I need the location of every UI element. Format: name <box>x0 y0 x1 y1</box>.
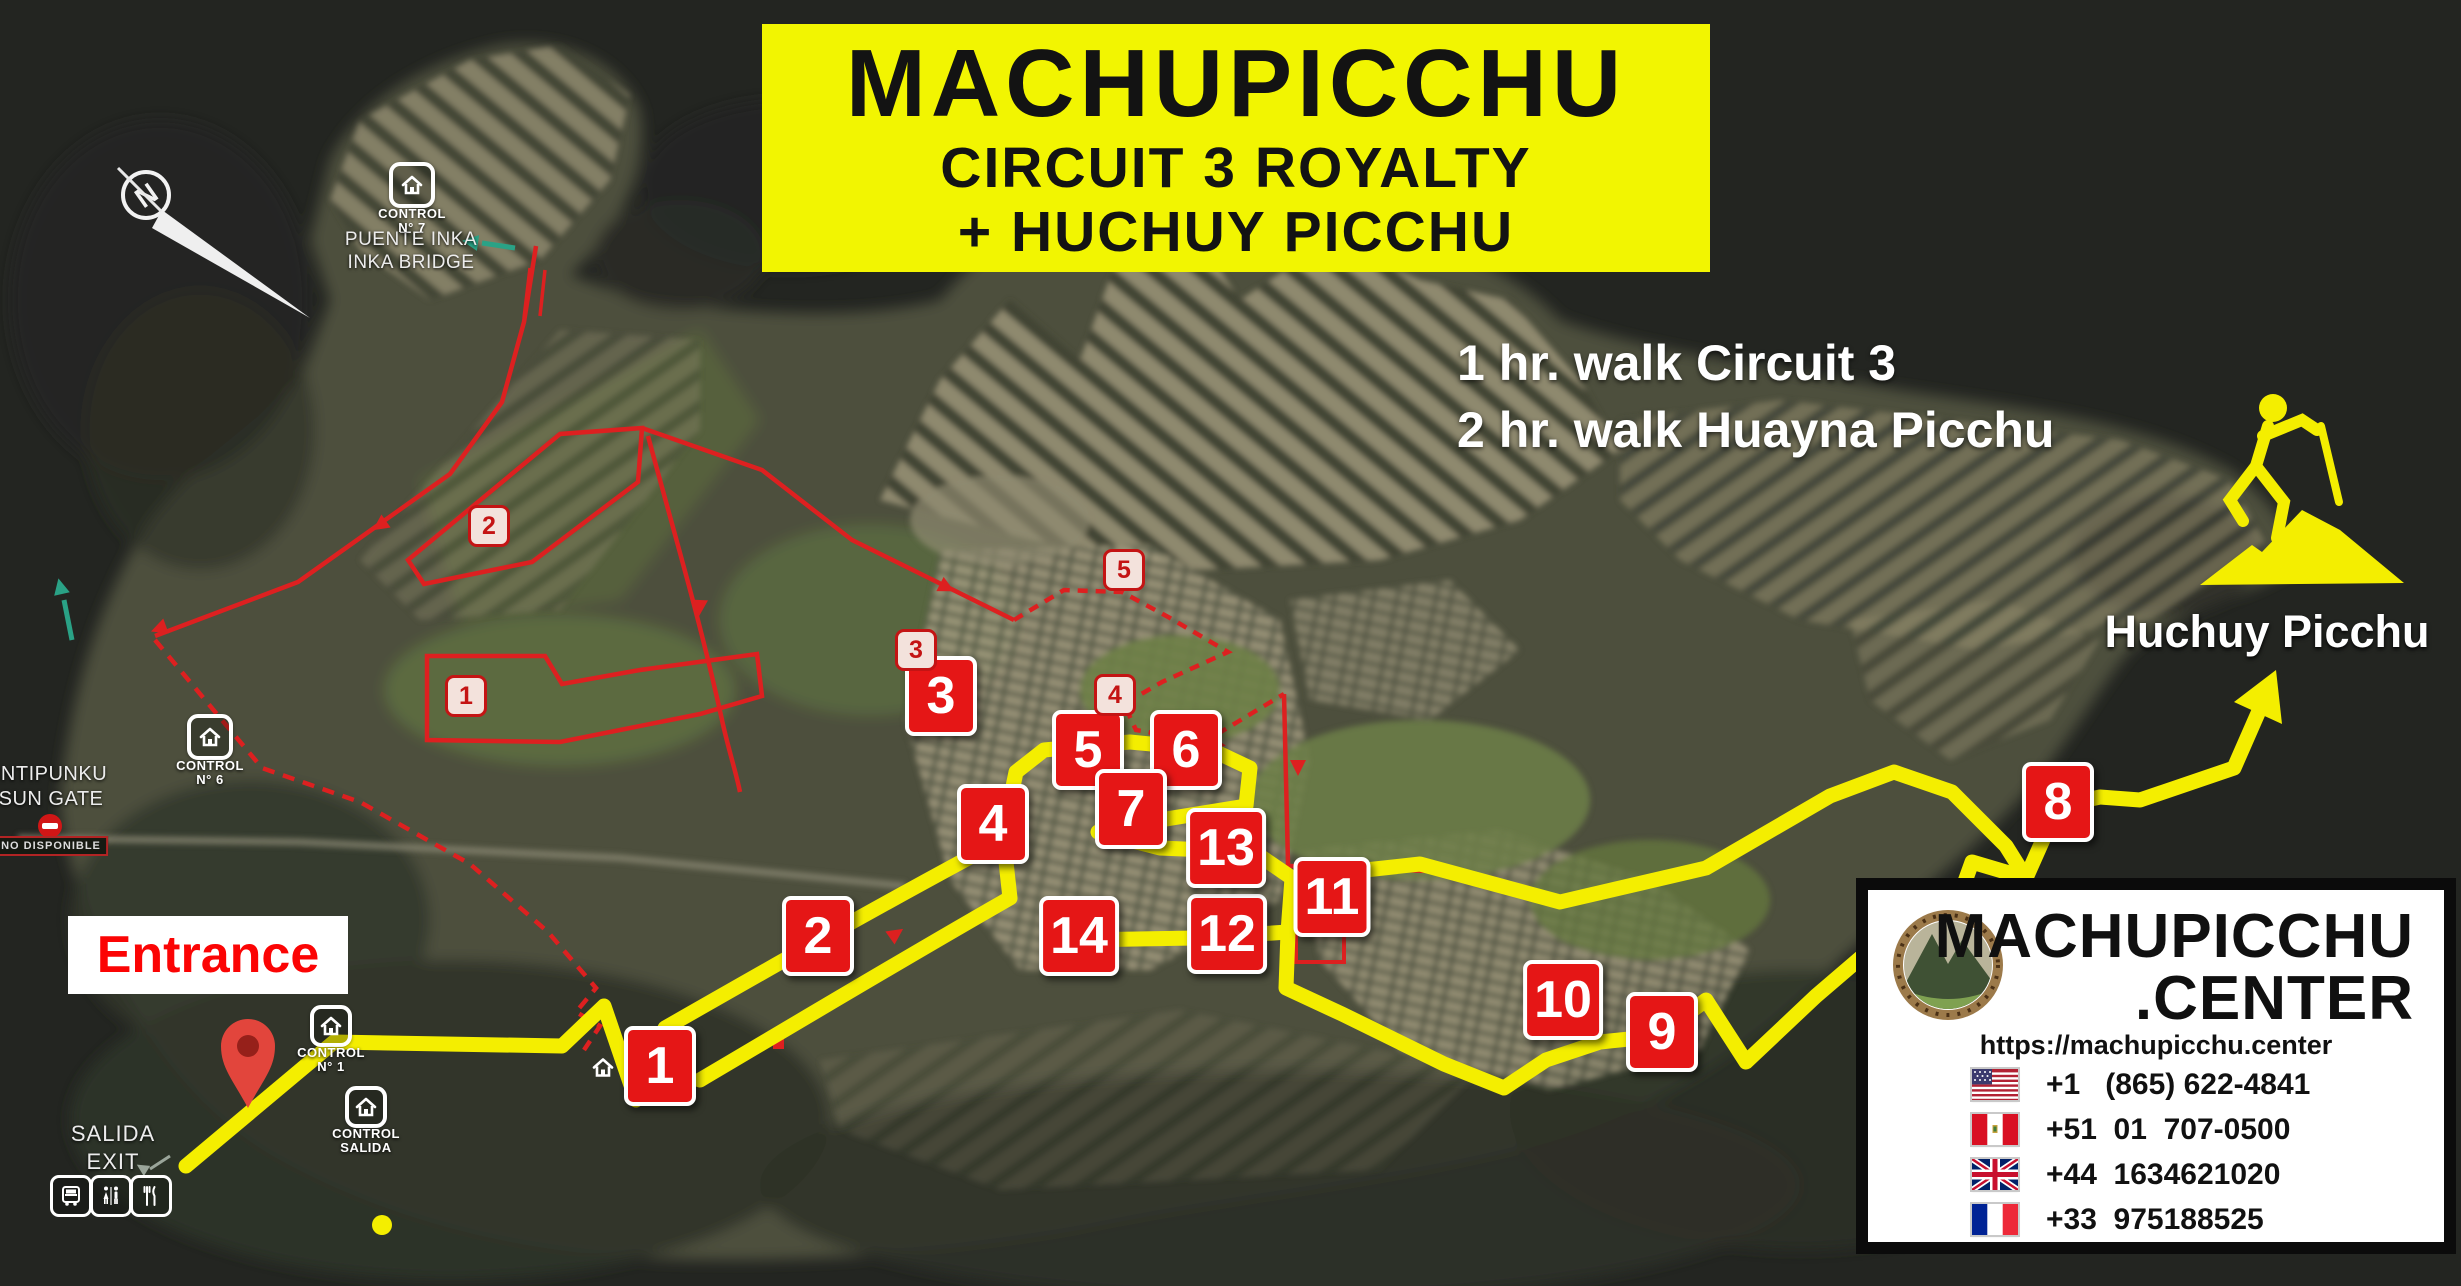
phone-list: +1 (865) 622-4841 +51 01 707-0500 +44 16… <box>1972 1062 2434 1242</box>
route-marker-7: 7 <box>1095 769 1167 849</box>
machupicchu-center-card: MACHUPICCHU .CENTER https://machupicchu.… <box>1856 878 2456 1254</box>
no-entry-icon <box>38 814 62 838</box>
france-flag-icon <box>1972 1204 2018 1235</box>
route-marker-2: 2 <box>782 896 854 976</box>
salida-exit-label: SALIDA EXIT <box>71 1120 155 1176</box>
route-marker-9: 9 <box>1626 992 1698 1072</box>
circuit-point-3: 3 <box>895 629 937 671</box>
exit-text: EXIT <box>71 1148 155 1176</box>
house-icon <box>400 173 424 197</box>
control-7-label: CONTROLN° 7 <box>378 207 446 235</box>
restrooms-facility <box>90 1175 132 1217</box>
map-subtitle-huchuy: + HUCHUY PICCHU <box>958 200 1514 264</box>
route-marker-1: 1 <box>624 1026 696 1106</box>
control-7: CONTROLN° 7 <box>389 162 435 208</box>
control-6: CONTROLN° 6 <box>187 714 233 760</box>
route-marker-8: 8 <box>2022 762 2094 842</box>
route-marker-12: 12 <box>1187 894 1267 974</box>
bus-facility <box>50 1175 92 1217</box>
not-available-badge: NO DISPONIBLE <box>0 836 108 856</box>
bus-icon <box>59 1184 83 1208</box>
inka-bridge-text: INKA BRIDGE <box>345 251 477 274</box>
circuit-point-4: 4 <box>1094 674 1136 716</box>
hiker-mountain-icon <box>2200 394 2404 585</box>
house-icon <box>591 1056 615 1085</box>
intipunku-text: INTIPUNKU <box>0 762 107 787</box>
salida-text: SALIDA <box>71 1120 155 1148</box>
brand-line2: .CENTER <box>1935 968 2414 1030</box>
circuit-point-2: 2 <box>468 505 510 547</box>
intipunku-sun-gate-label: INTIPUNKU SUN GATE <box>0 762 107 812</box>
route-marker-14: 14 <box>1039 896 1119 976</box>
circuit-point-5: 5 <box>1103 549 1145 591</box>
entrance-label-box: Entrance <box>68 916 348 994</box>
restrooms-icon <box>99 1184 123 1208</box>
map-subtitle-circuit: CIRCUIT 3 ROYALTY <box>940 136 1531 200</box>
house-icon <box>354 1095 378 1119</box>
sun-gate-text: SUN GATE <box>0 787 107 812</box>
route-marker-13: 13 <box>1186 808 1266 888</box>
website-url: https://machupicchu.center <box>1868 1030 2444 1061</box>
route-marker-11: 11 <box>1294 857 1371 937</box>
walk-duration-info: 1 hr. walk Circuit 3 2 hr. walk Huayna P… <box>1457 330 2054 464</box>
house-icon <box>198 725 222 749</box>
map-title: MACHUPICCHU <box>846 32 1626 136</box>
route-marker-4: 4 <box>957 784 1029 864</box>
restaurant-icon <box>139 1184 163 1208</box>
peru-flag-icon <box>1972 1114 2018 1145</box>
control-6-label: CONTROLN° 6 <box>176 759 244 787</box>
phone-number: +51 01 707-0500 <box>2046 1113 2290 1147</box>
control-salida: CONTROLSALIDA <box>345 1086 387 1128</box>
phone-row-gb: +44 1634621020 <box>1972 1152 2434 1197</box>
map-title-banner: MACHUPICCHU CIRCUIT 3 ROYALTY + HUCHUY P… <box>762 24 1710 272</box>
walk-info-line1: 1 hr. walk Circuit 3 <box>1457 330 2054 397</box>
phone-row-fr: +33 975188525 <box>1972 1197 2434 1242</box>
phone-number: +33 975188525 <box>2046 1203 2264 1237</box>
phone-number: +44 1634621020 <box>2046 1158 2280 1192</box>
phone-row-pe: +51 01 707-0500 <box>1972 1107 2434 1152</box>
house-icon <box>319 1014 343 1038</box>
entrance-label: Entrance <box>97 925 320 985</box>
phone-number: +1 (865) 622-4841 <box>2046 1068 2310 1102</box>
machu-picchu-circuit-map: N <box>0 0 2461 1286</box>
compass-north-icon: N <box>118 168 310 318</box>
control-1-label: CONTROLN° 1 <box>297 1046 365 1074</box>
phone-row-us: +1 (865) 622-4841 <box>1972 1062 2434 1107</box>
restaurant-facility <box>130 1175 172 1217</box>
circuit-point-1: 1 <box>445 675 487 717</box>
brand-name: MACHUPICCHU .CENTER <box>1935 906 2414 1030</box>
house-icon <box>591 1056 615 1080</box>
yellow-dot <box>372 1215 392 1235</box>
walk-info-line2: 2 hr. walk Huayna Picchu <box>1457 397 2054 464</box>
us-flag-icon <box>1972 1069 2018 1100</box>
brand-line1: MACHUPICCHU <box>1935 906 2414 968</box>
huchuy-picchu-label: Huchuy Picchu <box>2104 606 2429 658</box>
control-salida-label: CONTROLSALIDA <box>332 1127 400 1155</box>
route-marker-10: 10 <box>1523 960 1603 1040</box>
control-1: CONTROLN° 1 <box>310 1005 352 1047</box>
uk-flag-icon <box>1972 1159 2018 1190</box>
